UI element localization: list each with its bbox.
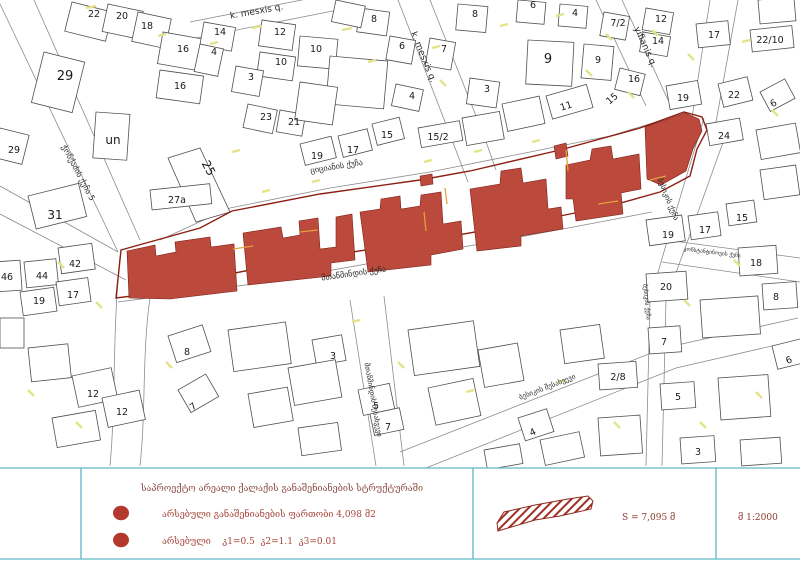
plot-number: 5 — [373, 401, 379, 412]
plot-number: 7 — [441, 44, 447, 55]
plot-number: 24 — [718, 131, 730, 142]
plot-number: 7 — [661, 337, 667, 348]
plot-number: 23 — [260, 112, 272, 123]
building — [478, 343, 524, 387]
plot-number: 3 — [484, 84, 490, 95]
building — [228, 322, 291, 372]
plot-number: 16 — [628, 74, 640, 85]
plot-number: 16 — [177, 44, 189, 55]
plot-number: 9 — [595, 55, 601, 66]
scale-value: მ 1:2000 — [738, 512, 778, 523]
plot-number: 3 — [248, 72, 254, 83]
plot-number: 18 — [141, 21, 153, 32]
cadastral-map-canvas: k. mesxis q.k. mesxis q.yifianis q.ჭონქა… — [0, 0, 800, 566]
plot-number: 12 — [87, 389, 99, 400]
plot-number: 14 — [652, 36, 664, 47]
building — [560, 324, 604, 363]
plot-number: 3 — [695, 447, 701, 458]
plot-number: 44 — [36, 271, 48, 282]
legend-panel: საპროექტო არეალი ქალაქის განაშენიანების … — [0, 468, 800, 566]
plot-number: 7 — [385, 422, 391, 433]
plot-number: 2/8 — [610, 372, 625, 383]
plot-number: 10 — [275, 57, 287, 68]
plot-number: 6 — [399, 41, 405, 52]
plot-number: 4 — [409, 91, 415, 102]
building — [598, 415, 643, 456]
building — [194, 44, 223, 76]
building — [740, 437, 782, 466]
plot-number: 15 — [381, 130, 393, 141]
legend-row-label: არსებული განაშენიანების ფართობი 4,098 მ2 — [162, 508, 376, 520]
building — [760, 165, 800, 200]
plot-number: 12 — [116, 407, 128, 418]
plot-number: 3 — [330, 351, 336, 362]
plot-number: 12 — [274, 27, 286, 38]
plot-number: 22/10 — [756, 35, 783, 46]
plot-number: 8 — [371, 14, 377, 25]
plot-number: 29 — [57, 69, 74, 84]
building — [298, 422, 342, 455]
plot-number: 21 — [288, 117, 300, 128]
plot-number: 8 — [472, 9, 478, 20]
plot-number: 19 — [311, 151, 323, 162]
building — [758, 0, 796, 24]
plot-number: 19 — [677, 93, 689, 104]
plot-number: 31 — [47, 208, 62, 222]
plot-number: 8 — [773, 292, 779, 303]
plot-number: 14 — [214, 27, 226, 38]
plot-number: 19 — [33, 296, 45, 307]
plot-number: 18 — [750, 258, 762, 269]
plot-number: 20 — [116, 11, 128, 22]
map-document: k. mesxis q.k. mesxis q.yifianis q.ჭონქა… — [0, 0, 800, 566]
plot-number: 10 — [310, 44, 322, 55]
red-dot-symbol — [113, 506, 129, 520]
plot-number: 17 — [347, 145, 359, 156]
plot-number: 17 — [708, 30, 720, 41]
plot-number: 29 — [8, 145, 20, 156]
building — [295, 82, 338, 125]
building — [408, 321, 480, 376]
building — [718, 375, 771, 420]
building — [28, 344, 71, 382]
plot-number: 15 — [736, 213, 748, 224]
plot-number: 12 — [655, 14, 667, 25]
plot-number: 22 — [728, 90, 740, 101]
plot-number: 42 — [69, 259, 81, 270]
building — [248, 387, 293, 427]
plot-number: 6 — [530, 0, 536, 11]
plot-number: 17 — [67, 290, 79, 301]
building — [700, 296, 761, 338]
plot-number: 9 — [544, 52, 552, 67]
plot-number: 22 — [88, 9, 100, 20]
plot-number: 4 — [572, 8, 578, 19]
building — [288, 360, 342, 406]
plot-number: 20 — [660, 282, 672, 293]
red-dot-symbol — [113, 533, 129, 547]
plot-number: 16 — [174, 81, 186, 92]
plot-number: 7/2 — [610, 18, 625, 29]
project-building — [420, 174, 433, 186]
plot-number: 15/2 — [427, 132, 448, 143]
building — [462, 111, 504, 145]
building — [756, 123, 800, 159]
plot-number: 46 — [1, 272, 13, 283]
plot-number: 4 — [211, 47, 217, 58]
building — [762, 282, 798, 310]
plot-number: 8 — [184, 347, 190, 358]
plot-number: un — [105, 133, 120, 147]
plot-number: 5 — [675, 392, 681, 403]
legend-row-label: არსებული კ1=0.5 კ2=1.1 კ3=0.01 — [162, 536, 337, 547]
building — [0, 318, 24, 348]
plot-number: 17 — [699, 225, 711, 236]
plot-number: 27a — [168, 195, 186, 206]
legend-title: საპროექტო არეალი ქალაქის განაშენიანების … — [140, 482, 423, 494]
plot-number: 19 — [662, 230, 674, 241]
area-value: S = 7,095 მ — [622, 512, 675, 523]
